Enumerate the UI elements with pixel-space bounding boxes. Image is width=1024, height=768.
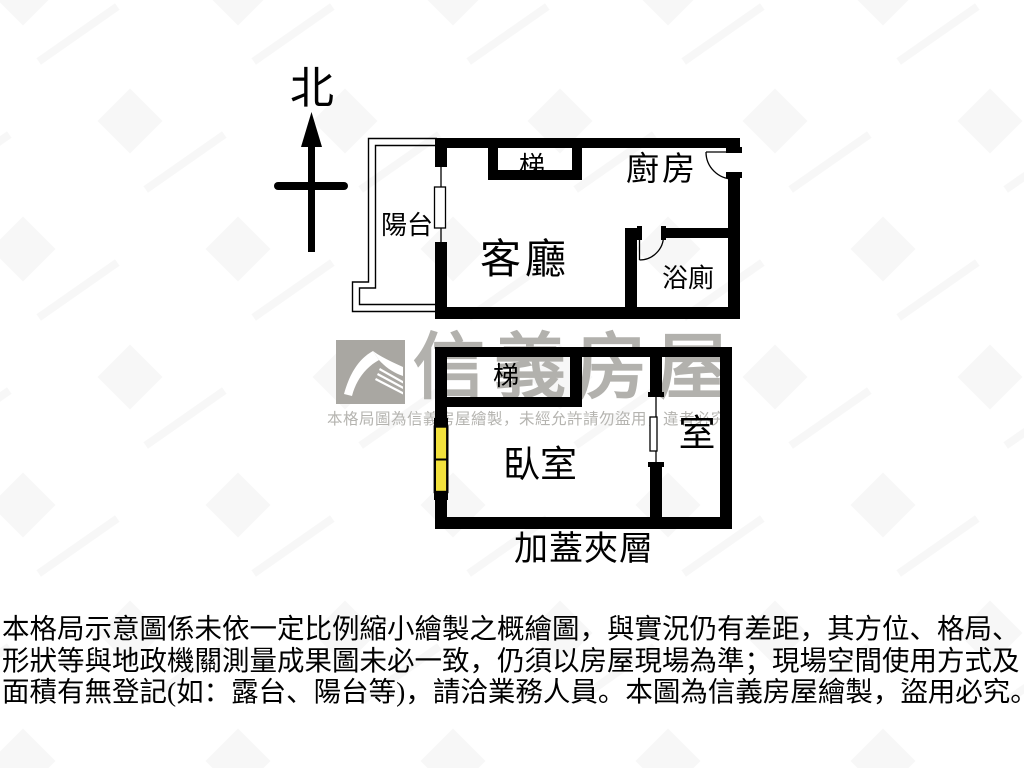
living-room-window xyxy=(435,167,446,242)
kitchen-label: 廚房 xyxy=(626,151,698,188)
disclaimer-line-3: 面積有無登記(如：露台、陽台等)，請洽業務人員。本圖為信義房屋繪製，盜用必究。 xyxy=(2,676,1024,708)
highlighted-entry-window xyxy=(434,418,448,500)
balcony-label: 陽台 xyxy=(381,211,433,240)
room-divider-window xyxy=(650,396,657,466)
bedroom-label: 臥室 xyxy=(503,444,577,486)
upper-floor-plan: 陽台 梯 廚房 客廳 浴廁 xyxy=(353,138,743,319)
floor-plan-page: 信義房屋 本格局圖為信義房屋繪製，未經允許請勿盜用，違者必究 北 xyxy=(0,0,1024,768)
lower-floor-plan: 梯 臥室 室 加蓋夾層 xyxy=(434,347,732,568)
north-label: 北 xyxy=(290,64,334,113)
north-compass: 北 xyxy=(278,64,344,252)
bathroom-label: 浴廁 xyxy=(662,264,714,293)
disclaimer-line-1: 本格局示意圖係未依一定比例縮小繪製之概繪圖，與實況仍有差距，其方位、格局、 xyxy=(2,613,1024,645)
upper-stairs-label: 梯 xyxy=(519,152,545,181)
room-label: 室 xyxy=(679,413,716,455)
bathroom-door xyxy=(640,236,664,260)
mezzanine-caption: 加蓋夾層 xyxy=(514,531,654,568)
living-room-label: 客廳 xyxy=(480,236,570,282)
lower-stairs-label: 梯 xyxy=(493,362,519,391)
north-arrow-shaft xyxy=(308,140,315,252)
disclaimer-text: 本格局示意圖係未依一定比例縮小繪製之概繪圖，與實況仍有差距，其方位、格局、 形狀… xyxy=(2,613,1024,708)
disclaimer-line-2: 形狀等與地政機關測量成果圖未必一致，仍須以房屋現場為準；現場空間使用方式及 xyxy=(2,645,1024,677)
